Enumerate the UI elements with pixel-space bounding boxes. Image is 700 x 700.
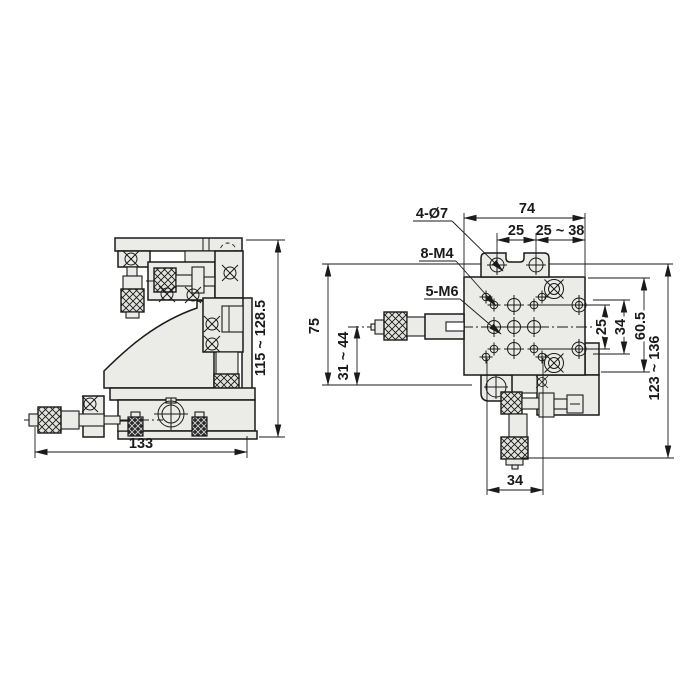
face-plate — [464, 277, 585, 375]
label-text-8-m4: 8-M4 — [420, 246, 453, 262]
front-view: 74 25 25 ~ 38 4-Ø7 8-M4 5-M6 — [307, 201, 674, 495]
dim-text-123-136: 123 ~ 136 — [647, 336, 663, 401]
dim-text-25: 25 — [508, 223, 524, 239]
knurled-knob — [501, 437, 528, 459]
knurled-knob — [121, 289, 144, 312]
bottom-bracket-column — [512, 375, 537, 393]
mount-screw-icon — [159, 286, 175, 302]
side-view: 133 115 ~ 128.5 — [24, 238, 285, 458]
dim-text-133: 133 — [129, 436, 153, 452]
dim-text-height-range: 115 ~ 128.5 — [253, 300, 269, 376]
dim-text-25-38: 25 ~ 38 — [536, 223, 585, 239]
stage-dimension-drawing: 133 115 ~ 128.5 — [0, 0, 700, 700]
micrometer-x-axis — [146, 251, 216, 303]
knurled-knob — [38, 407, 61, 433]
dim-text-right-25: 25 — [594, 319, 610, 335]
dim-text-bottom-34: 34 — [507, 473, 523, 489]
label-text-4-o7: 4-Ø7 — [416, 206, 448, 222]
technical-drawing-page: 133 115 ~ 128.5 — [0, 0, 700, 700]
dim-travel-25-38: 25 ~ 38 — [536, 223, 585, 240]
mount-screw-icon — [82, 396, 98, 412]
label-text-5-m6: 5-M6 — [425, 284, 458, 300]
side-rail-tab — [585, 343, 599, 375]
z-body-screw-icon — [204, 316, 220, 332]
knurled-lock-nut — [501, 392, 522, 414]
micrometer-front-x — [371, 312, 464, 340]
knurled-knob — [384, 312, 407, 340]
micrometer-front-z — [501, 414, 528, 469]
dim-text-31-44: 31 ~ 44 — [336, 332, 352, 381]
dim-text-right-34: 34 — [613, 319, 629, 335]
column-screw-icon — [222, 265, 238, 281]
dim-text-75: 75 — [307, 318, 323, 334]
dim-hole-pitch-25: 25 — [497, 223, 536, 256]
small-lock-screw-icon — [536, 376, 548, 388]
z-axis-body — [203, 298, 243, 352]
top-plate — [115, 238, 242, 251]
dim-travel-31-44: 31 ~ 44 — [336, 326, 357, 385]
top-clamp-knob — [118, 251, 150, 318]
mount-screw-icon — [185, 287, 201, 303]
dim-text-74: 74 — [519, 201, 535, 217]
base-stage — [110, 388, 257, 439]
z-carriage-arm — [104, 301, 214, 388]
z-body-screw-icon — [204, 336, 220, 352]
clamp-screw-icon — [123, 251, 139, 267]
